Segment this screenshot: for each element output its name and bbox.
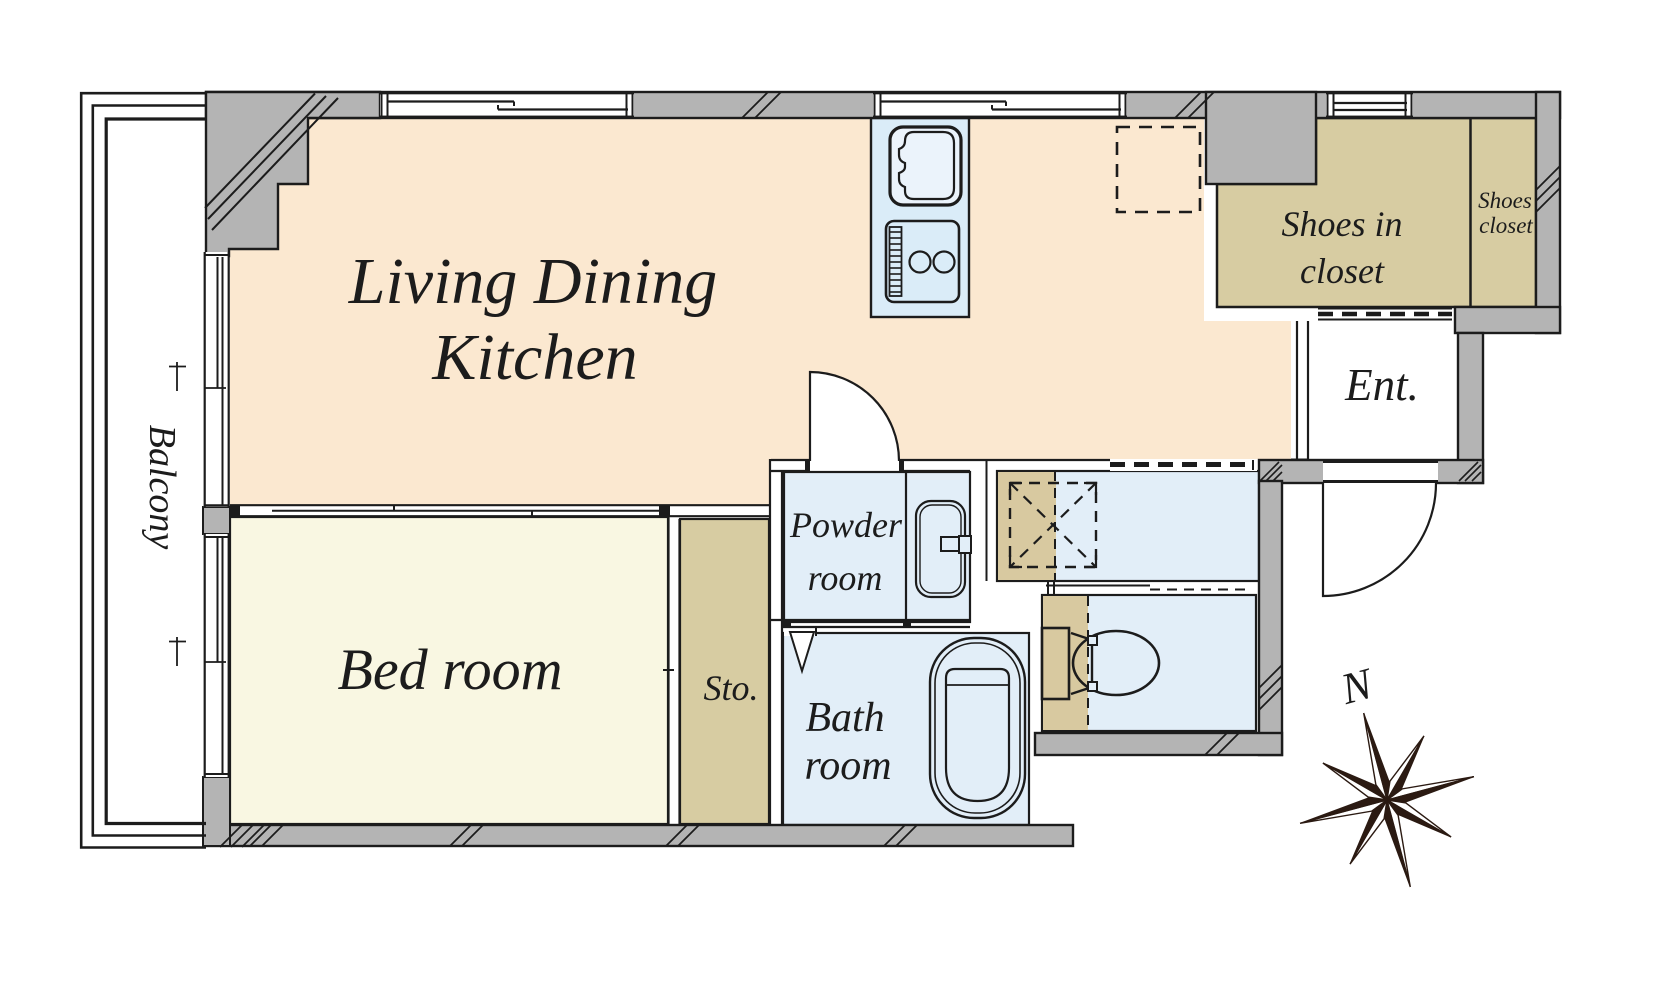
svg-text:Kitchen: Kitchen [431,321,637,394]
svg-text:Shoes in: Shoes in [1282,204,1403,244]
svg-text:Balcony: Balcony [141,425,183,550]
svg-text:Powder: Powder [789,505,903,545]
svg-text:Bath: Bath [805,695,884,741]
svg-text:Bed room: Bed room [338,637,563,702]
svg-text:Shoes: Shoes [1478,188,1532,213]
svg-text:Living Dining: Living Dining [348,245,718,318]
svg-text:closet: closet [1300,251,1385,291]
svg-text:room: room [804,743,891,789]
svg-text:room: room [808,558,883,598]
svg-text:Ent.: Ent. [1344,360,1419,410]
svg-text:Sto.: Sto. [703,668,758,708]
svg-text:closet: closet [1479,213,1533,238]
